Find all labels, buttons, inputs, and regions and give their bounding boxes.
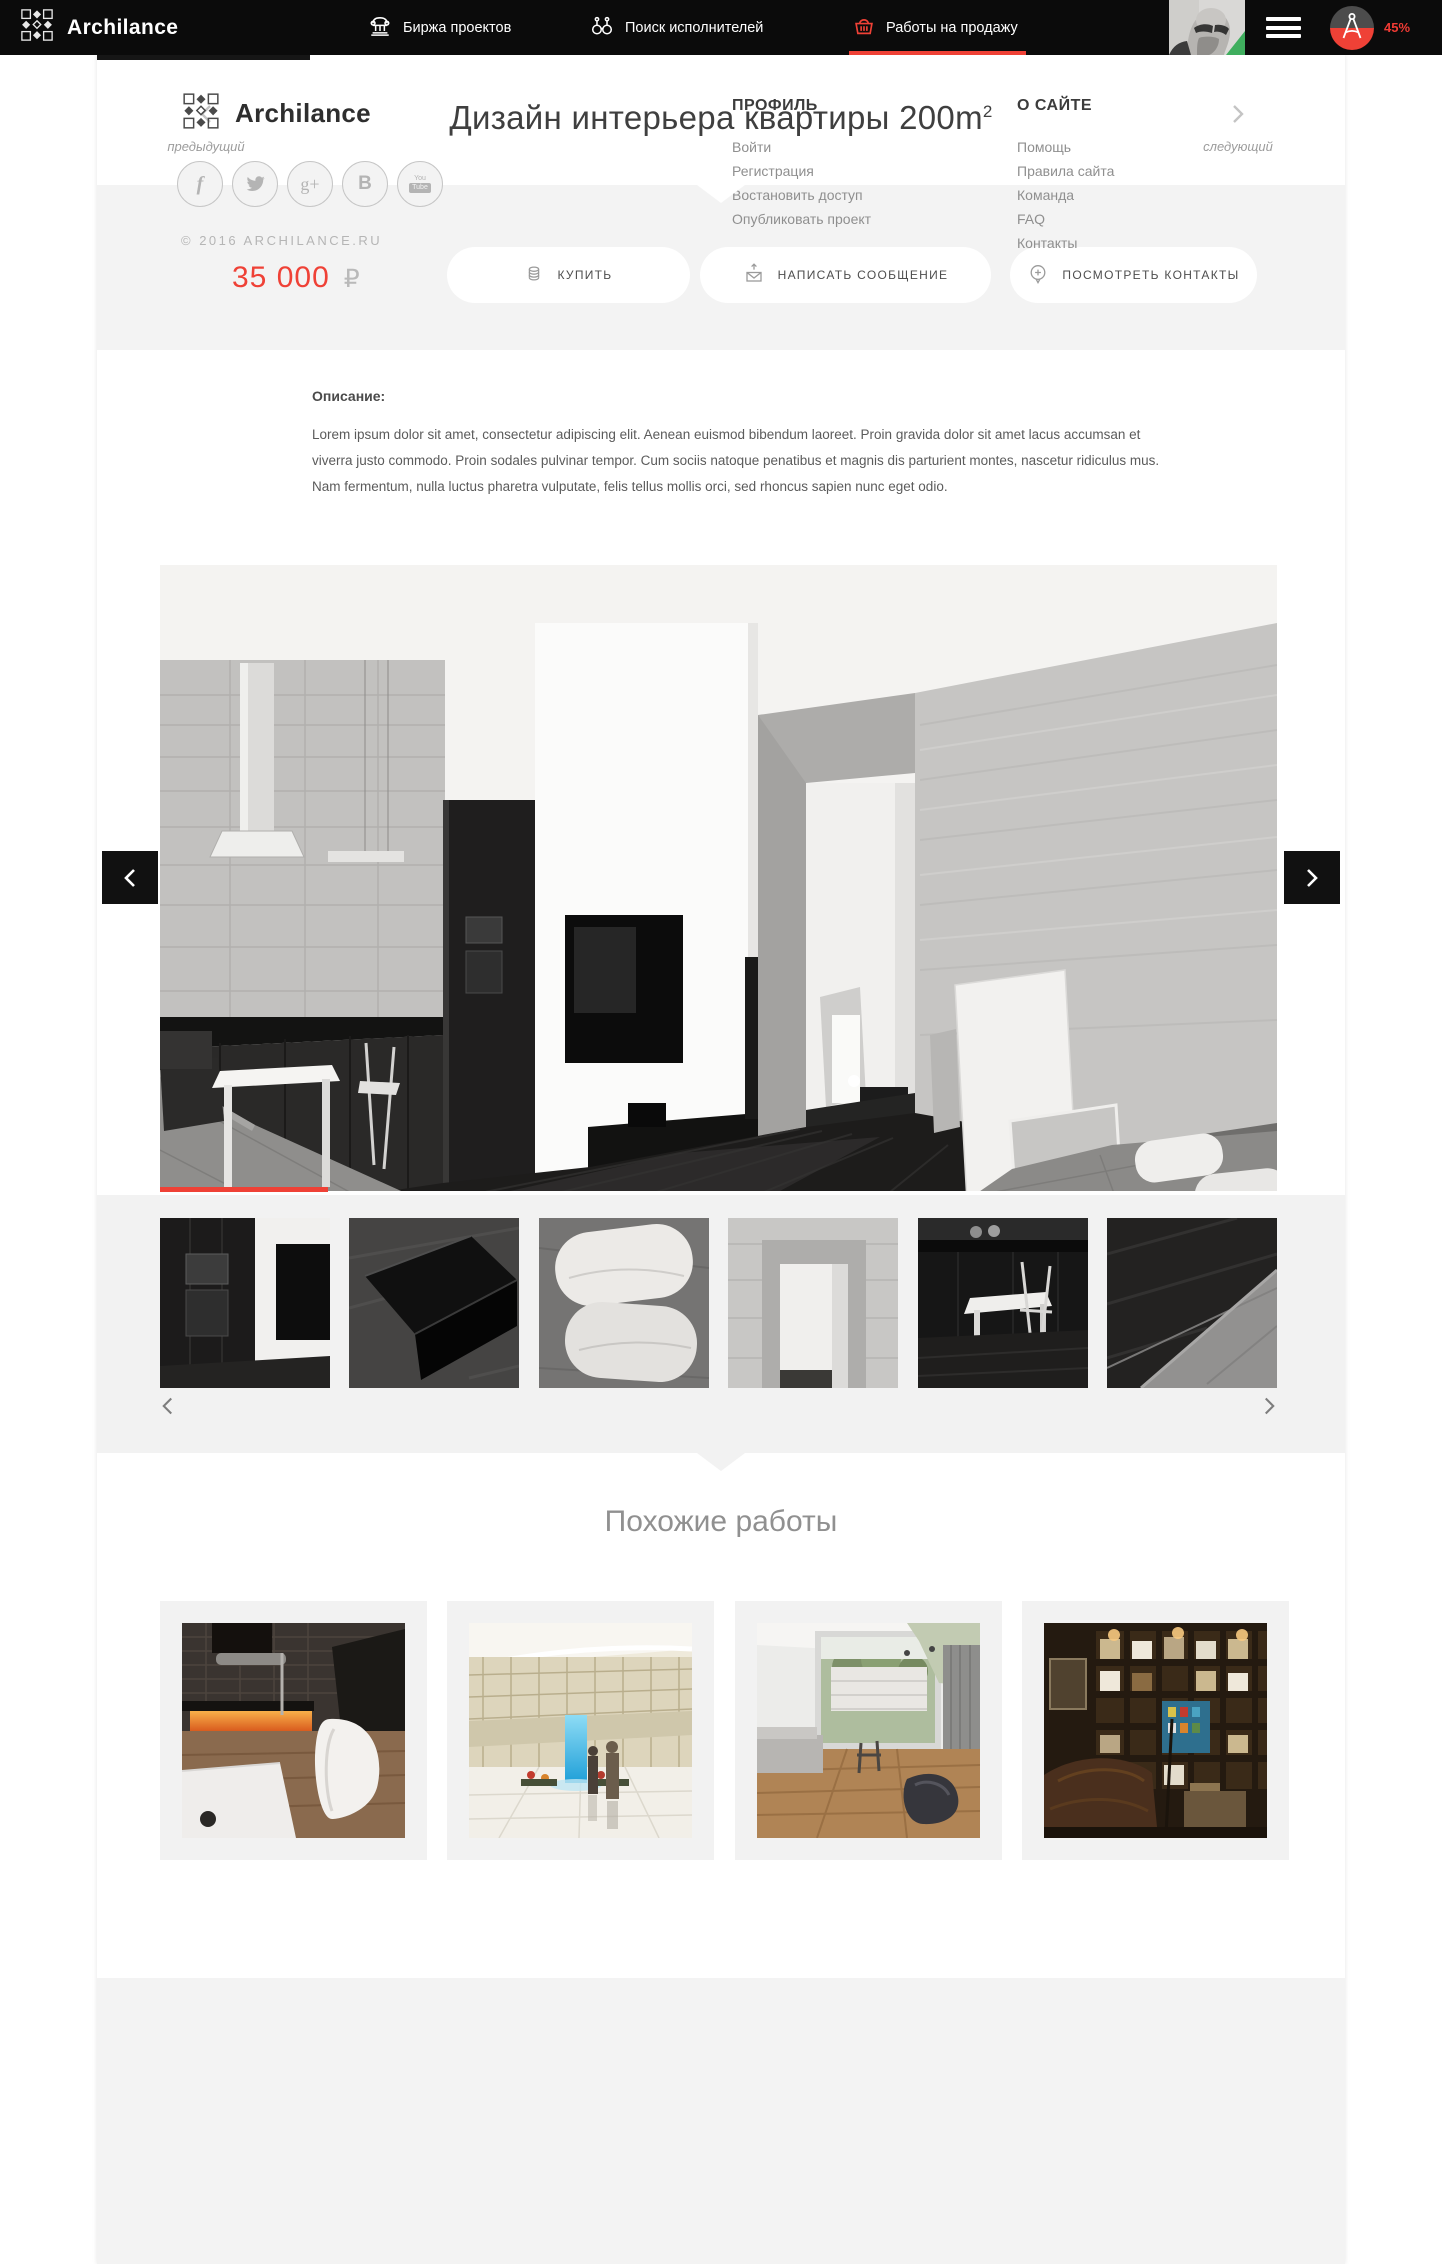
photo-prev-arrow[interactable] [102, 851, 158, 904]
footer-column-profile: ПРОФИЛЬ Войти Регистрация Востановить до… [732, 97, 871, 231]
buy-button[interactable]: КУПИТЬ [447, 247, 690, 303]
description-section: Описание: Lorem ipsum dolor sit amet, co… [97, 350, 1345, 565]
price-currency: ₽ [344, 264, 360, 294]
footer-column-about: О САЙТЕ Помощь Правила сайта Команда FAQ… [1017, 97, 1114, 255]
chevron-right-icon [1262, 1395, 1277, 1417]
view-contacts-label: ПОСМОТРЕТЬ КОНТАКТЫ [1062, 268, 1239, 282]
copyright: © 2016 ARCHILANCE.RU [181, 233, 382, 248]
nav-item-label: Поиск исполнителей [625, 20, 763, 36]
nav-item-search-performers[interactable]: Поиск исполнителей [590, 0, 763, 55]
envelope-send-icon [743, 263, 765, 288]
archilance-logo-icon [181, 91, 221, 136]
send-message-label: НАПИСАТЬ СООБЩЕНИЕ [778, 268, 949, 282]
footer-link-faq[interactable]: FAQ [1017, 207, 1114, 231]
similar-work-photo-library [1044, 1623, 1267, 1838]
chevron-left-icon [122, 867, 138, 889]
coins-icon [524, 264, 544, 287]
menu-hamburger-icon[interactable] [1266, 17, 1301, 38]
footer: Archilance f g+ B You Tube © 2016 ARCHIL… [97, 1978, 1345, 2264]
price: 35 000 ₽ [232, 247, 360, 303]
thumbnail-6[interactable] [1107, 1218, 1277, 1388]
basket-icon [853, 15, 875, 41]
footer-link-contacts[interactable]: Контакты [1017, 231, 1114, 255]
similar-works-heading: Похожие работы [97, 1505, 1345, 1539]
footer-link-register[interactable]: Регистрация [732, 159, 871, 183]
view-contacts-button[interactable]: ПОСМОТРЕТЬ КОНТАКТЫ [1010, 247, 1257, 303]
footer-link-login[interactable]: Войти [732, 135, 871, 159]
price-section: 35 000 ₽ КУПИТЬ [97, 185, 1345, 350]
top-navbar: Archilance Биржа проектов [0, 0, 1442, 55]
send-message-button[interactable]: НАПИСАТЬ СООБЩЕНИЕ [700, 247, 991, 303]
buy-button-label: КУПИТЬ [557, 268, 612, 282]
photo-next-arrow[interactable] [1284, 851, 1340, 904]
footer-link-publish-project[interactable]: Опубликовать проект [732, 207, 871, 231]
description-text: Lorem ipsum dolor sit amet, consectetur … [312, 422, 1178, 500]
chevron-right-icon [1304, 867, 1320, 889]
content-column: предыдущий Дизайн интерьера квартиры 200… [97, 55, 1345, 2264]
main-photo [160, 565, 1277, 1191]
next-project-button[interactable]: следующий [1193, 103, 1283, 154]
similar-work-card-2[interactable] [447, 1601, 714, 1860]
footer-link-help[interactable]: Помощь [1017, 135, 1114, 159]
footer-brand[interactable]: Archilance [181, 91, 371, 136]
progress-percent: 45% [1384, 0, 1410, 55]
thumbnail-2[interactable] [349, 1218, 519, 1388]
description-label: Описание: [312, 388, 385, 404]
google-plus-icon[interactable]: g+ [287, 161, 333, 207]
similar-work-card-1[interactable] [160, 1601, 427, 1860]
similar-work-photo-mall [469, 1623, 692, 1838]
vk-icon[interactable]: B [342, 161, 388, 207]
footer-link-restore-access[interactable]: Востановить доступ [732, 183, 871, 207]
binoculars-icon [590, 14, 614, 42]
thumbnail-3[interactable] [539, 1218, 709, 1388]
social-links: f g+ B You Tube [177, 161, 443, 207]
brand-name: Archilance [67, 16, 178, 40]
thumbs-prev-arrow[interactable] [160, 1391, 190, 1421]
thumbnail-4[interactable] [728, 1218, 898, 1388]
similar-work-card-3[interactable] [735, 1601, 1002, 1860]
page: Archilance Биржа проектов [0, 0, 1442, 2264]
nav-item-label: Работы на продажу [886, 20, 1018, 36]
facebook-icon[interactable]: f [177, 161, 223, 207]
twitter-icon[interactable] [232, 161, 278, 207]
thumbs-next-arrow[interactable] [1247, 1391, 1277, 1421]
similar-works-section: Похожие работы [97, 1453, 1345, 1978]
footer-accent-bar [97, 55, 310, 60]
pin-plus-icon [1027, 263, 1049, 288]
user-avatar[interactable] [1169, 0, 1245, 55]
footer-brand-name: Archilance [235, 98, 371, 129]
price-value: 35 000 [232, 261, 330, 295]
thumbnail-1[interactable] [160, 1218, 330, 1388]
similar-work-photo-livingroom [757, 1623, 980, 1838]
next-label: следующий [1193, 139, 1283, 154]
chevron-right-icon [1228, 103, 1248, 125]
similar-work-card-4[interactable] [1022, 1601, 1289, 1860]
footer-column-title: О САЙТЕ [1017, 97, 1114, 115]
prev-label: предыдущий [161, 139, 251, 154]
gallery-progress-bar [160, 1187, 328, 1192]
profile-progress-badge[interactable] [1329, 5, 1375, 51]
footer-link-rules[interactable]: Правила сайта [1017, 159, 1114, 183]
youtube-icon[interactable]: You Tube [397, 161, 443, 207]
archilance-logo-icon [20, 7, 54, 48]
nav-item-works-for-sale[interactable]: Работы на продажу [853, 0, 1018, 55]
footer-column-title: ПРОФИЛЬ [732, 97, 871, 115]
gallery-section [97, 565, 1345, 1195]
thumbnail-strip [97, 1195, 1345, 1453]
nav-item-label: Биржа проектов [403, 20, 511, 36]
bank-column-icon [368, 14, 392, 42]
brand-logo[interactable]: Archilance [20, 0, 178, 55]
similar-work-photo-fireplace [182, 1623, 405, 1838]
nav-item-exchange[interactable]: Биржа проектов [368, 0, 511, 55]
chevron-left-icon [160, 1395, 175, 1417]
thumbnail-5[interactable] [918, 1218, 1088, 1388]
footer-link-team[interactable]: Команда [1017, 183, 1114, 207]
title-superscript: 2 [983, 102, 993, 121]
